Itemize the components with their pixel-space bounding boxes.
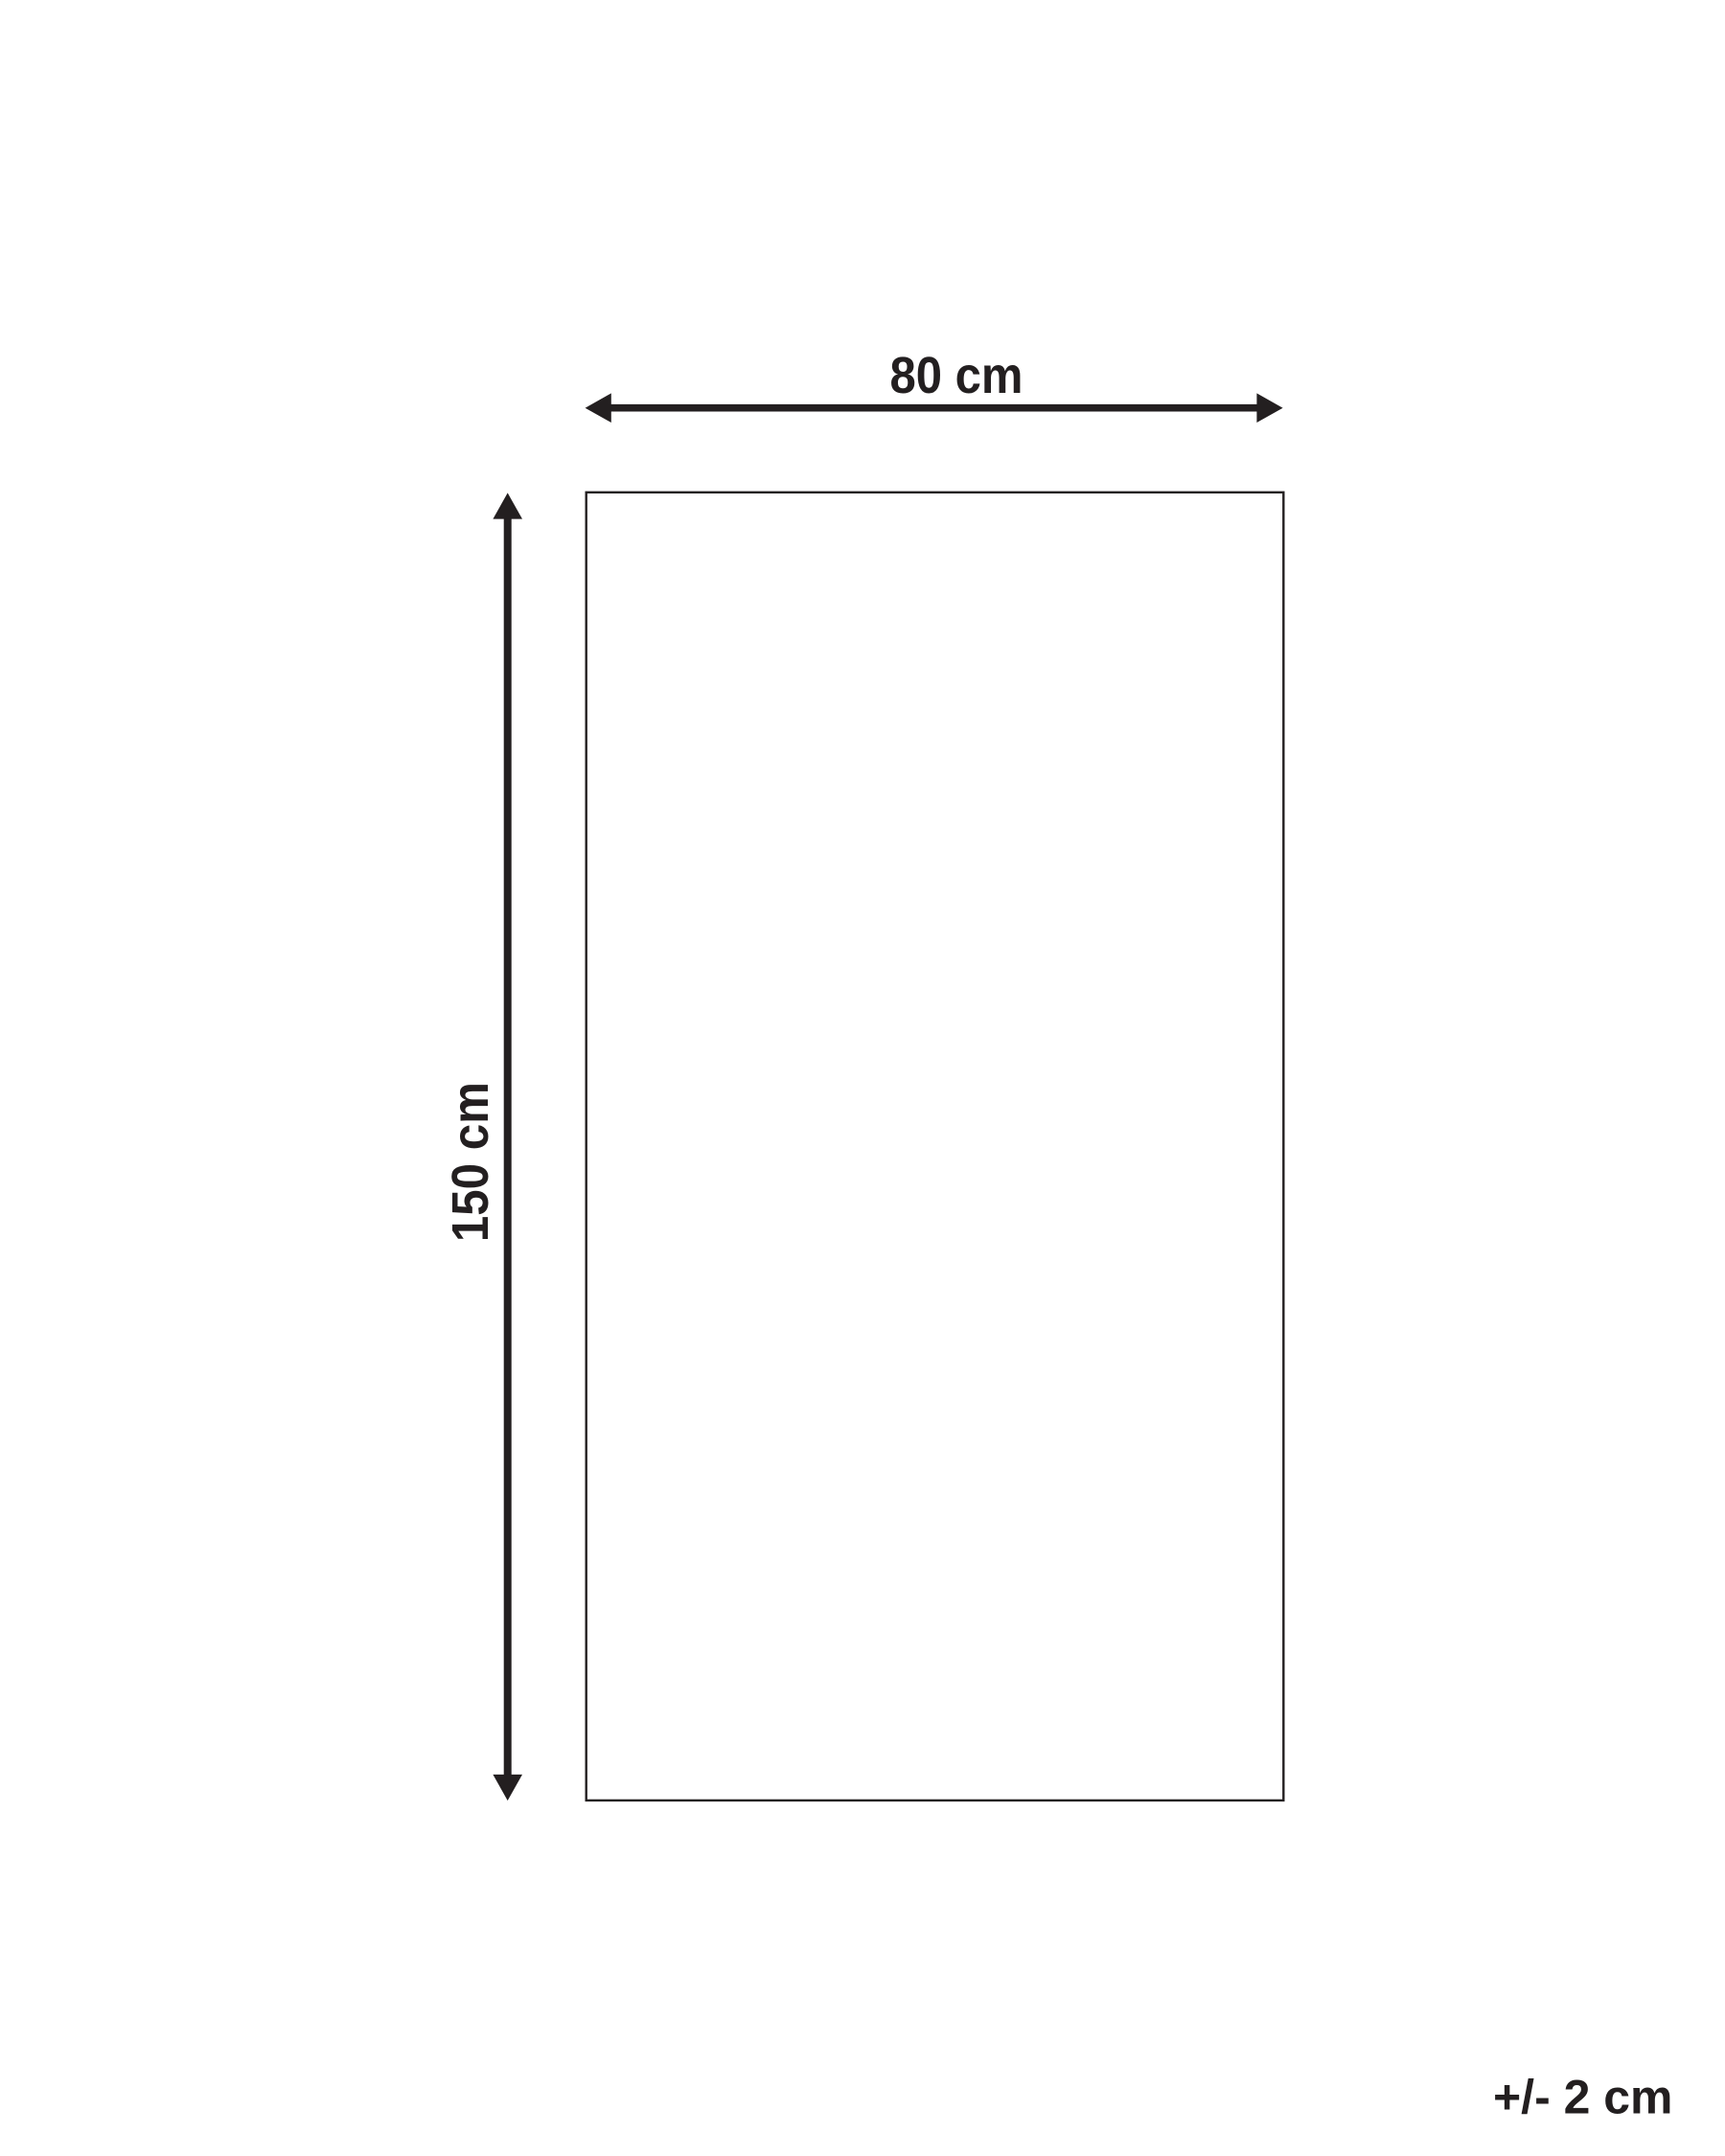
svg-text:150 cm: 150 cm — [442, 1082, 499, 1242]
svg-text:+/- 2 cm: +/- 2 cm — [1493, 2071, 1673, 2124]
svg-text:80 cm: 80 cm — [890, 347, 1023, 404]
